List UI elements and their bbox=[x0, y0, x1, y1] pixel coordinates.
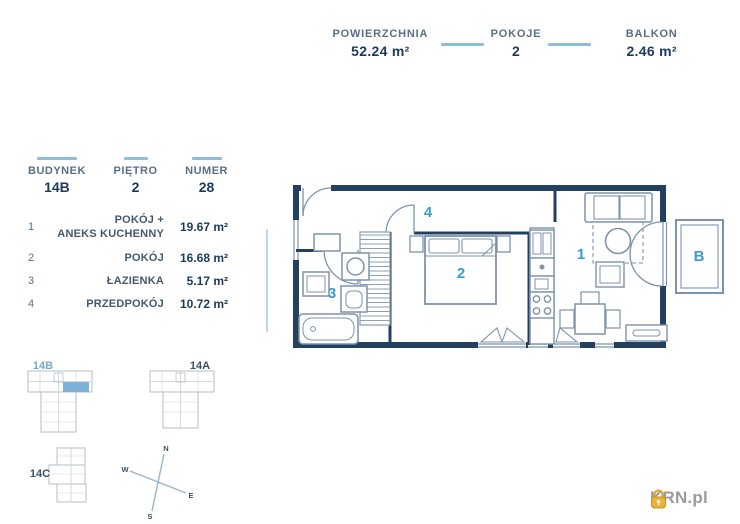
fridge-door bbox=[533, 233, 541, 254]
balcony-door-arc bbox=[630, 222, 662, 254]
header-divider bbox=[548, 43, 592, 46]
room-row-1: 1 POKÓJ + ANEKS KUCHENNY 19.67 m² bbox=[28, 213, 228, 242]
kitchen-counter bbox=[530, 228, 554, 344]
window-opening bbox=[595, 341, 614, 350]
unit-building-label: BUDYNEK bbox=[28, 165, 86, 177]
minimap-14c: 14C bbox=[30, 448, 86, 502]
room-name: POKÓJ bbox=[48, 251, 164, 265]
left-window-opening bbox=[292, 220, 301, 260]
sofa-cushion bbox=[594, 196, 619, 219]
room-label-bathroom: 3 bbox=[328, 285, 336, 302]
unit-bar bbox=[37, 157, 77, 160]
room-area: 5.17 m² bbox=[164, 274, 228, 288]
unit-bar bbox=[124, 157, 148, 160]
room-name: ŁAZIENKA bbox=[48, 274, 164, 288]
minimap-14b: 14B bbox=[28, 360, 92, 432]
stove bbox=[530, 292, 554, 318]
bedroom-door-arc bbox=[386, 205, 414, 233]
stat-area: POWIERZCHNIA 52.24 m² bbox=[320, 28, 441, 59]
room-no: 4 bbox=[28, 298, 48, 310]
unit-floor: PIĘTRO 2 bbox=[114, 157, 158, 195]
compass-w-label: W bbox=[121, 465, 129, 474]
stat-rooms-label: POKOJE bbox=[491, 28, 542, 40]
room-name: POKÓJ + ANEKS KUCHENNY bbox=[48, 213, 164, 242]
room-no: 2 bbox=[28, 252, 48, 264]
summary-header: POWIERZCHNIA 52.24 m² POKOJE 2 BALKON 2.… bbox=[320, 28, 712, 59]
dining-chair bbox=[606, 310, 620, 328]
highlighted-unit bbox=[63, 382, 89, 392]
stat-area-label: POWIERZCHNIA bbox=[333, 28, 429, 40]
room-list: 1 POKÓJ + ANEKS KUCHENNY 19.67 m² 2 POKÓ… bbox=[28, 213, 228, 320]
unit-floor-value: 2 bbox=[132, 179, 140, 195]
sofa-cushion bbox=[620, 196, 645, 219]
room-no: 3 bbox=[28, 275, 48, 287]
room-row-2: 2 POKÓJ 16.68 m² bbox=[28, 251, 228, 265]
room-no: 1 bbox=[28, 221, 48, 233]
header-divider bbox=[441, 43, 485, 46]
stat-rooms: POKOJE 2 bbox=[484, 28, 547, 59]
unit-number: NUMER 28 bbox=[185, 157, 228, 195]
stat-balcony: BALKON 2.46 m² bbox=[591, 28, 712, 59]
room-label-bedroom: 2 bbox=[457, 265, 465, 282]
minimap-14a: 14A bbox=[150, 360, 214, 428]
nightstand bbox=[497, 236, 510, 252]
unit-building-value: 14B bbox=[44, 179, 70, 195]
unit-number-value: 28 bbox=[199, 179, 215, 195]
nightstand bbox=[410, 236, 423, 252]
compass-n-label: N bbox=[163, 444, 168, 453]
room-area: 10.72 m² bbox=[164, 297, 228, 311]
dining-table bbox=[575, 304, 605, 334]
unit-building: BUDYNEK 14B bbox=[28, 157, 86, 195]
unit-number-label: NUMER bbox=[185, 165, 228, 177]
krn-logo-icon bbox=[650, 488, 667, 509]
balcony-label: B bbox=[694, 248, 705, 265]
room-name: PRZEDPOKÓJ bbox=[48, 297, 164, 311]
oven-knob bbox=[540, 265, 544, 269]
compass: N W E S bbox=[121, 444, 193, 521]
stat-balcony-value: 2.46 m² bbox=[626, 43, 676, 59]
stat-area-value: 52.24 m² bbox=[351, 43, 409, 59]
unit-bar bbox=[192, 157, 222, 160]
minimap-14b-label: 14B bbox=[33, 360, 53, 372]
fridge-door bbox=[543, 233, 551, 254]
compass-s-label: S bbox=[147, 512, 152, 521]
kitchen-sink-basin bbox=[535, 279, 548, 289]
stat-balcony-label: BALKON bbox=[626, 28, 678, 40]
minimap-14c-label: 14C bbox=[30, 468, 50, 480]
dining-chair bbox=[581, 292, 599, 305]
round-table bbox=[606, 229, 631, 254]
room-label-living: 1 bbox=[577, 246, 585, 263]
tv-bench-detail bbox=[633, 330, 660, 336]
balcony-door-arc bbox=[630, 254, 662, 286]
washing-machine bbox=[342, 253, 369, 280]
krn-logo: KRN.pl bbox=[650, 488, 708, 508]
floor-plan-page: POWIERZCHNIA 52.24 m² POKOJE 2 BALKON 2.… bbox=[0, 0, 740, 524]
compass-e-label: E bbox=[188, 491, 193, 500]
room-area: 16.68 m² bbox=[164, 251, 228, 265]
living-furniture bbox=[560, 193, 667, 341]
stat-rooms-value: 2 bbox=[512, 43, 520, 59]
room-row-3: 3 ŁAZIENKA 5.17 m² bbox=[28, 274, 228, 288]
unit-floor-label: PIĘTRO bbox=[114, 165, 158, 177]
room-row-4: 4 PRZEDPOKÓJ 10.72 m² bbox=[28, 297, 228, 311]
cabinet bbox=[314, 234, 340, 251]
room-area: 19.67 m² bbox=[164, 220, 228, 234]
dining-chair bbox=[560, 310, 574, 328]
pillow bbox=[429, 239, 459, 253]
balcony-door-opening bbox=[660, 222, 671, 286]
minimap-14a-label: 14A bbox=[190, 360, 210, 372]
room-label-hall: 4 bbox=[424, 204, 433, 221]
unit-info: BUDYNEK 14B PIĘTRO 2 NUMER 28 bbox=[28, 157, 228, 195]
